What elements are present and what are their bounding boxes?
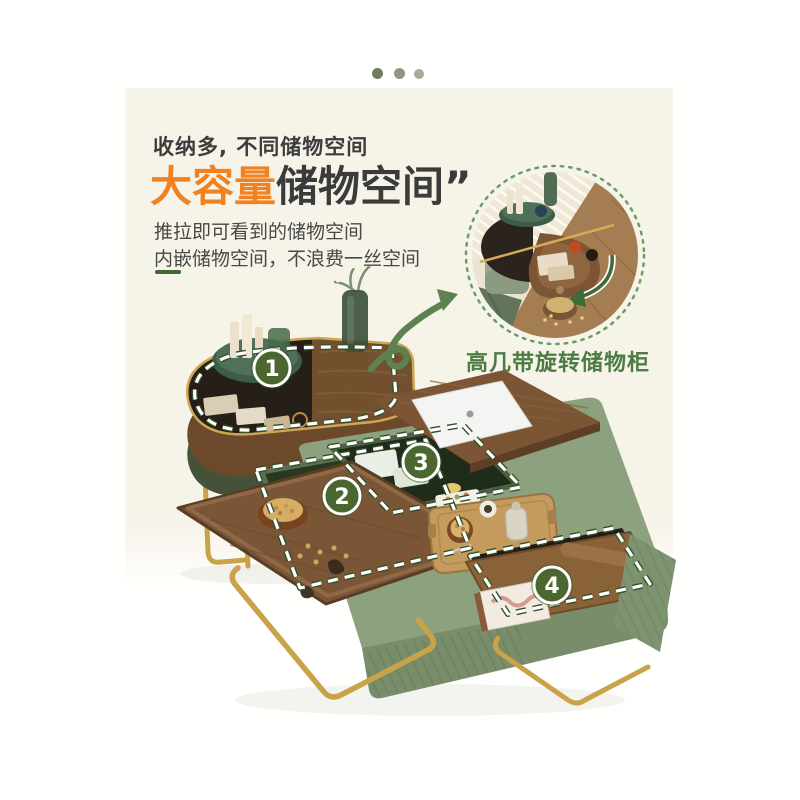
callout-badge-3: 3: [401, 442, 441, 482]
product-detail-page: 1 2 3 4: [0, 0, 800, 800]
badge-number-2: 2: [334, 485, 349, 510]
callout-badge-2: 2: [322, 476, 362, 516]
carousel-dot-3[interactable]: [414, 69, 424, 79]
carousel-dot-2[interactable]: [394, 68, 405, 79]
callout-badge-1: 1: [252, 348, 292, 388]
title-rest: 储物空间: [276, 162, 444, 211]
page-title: 大容量储物空间”: [150, 153, 472, 214]
description-line-2: 内嵌储物空间，不浪费一丝空间: [154, 246, 420, 273]
carousel-dot-1[interactable]: [372, 68, 383, 79]
description-line-1: 推拉即可看到的储物空间: [154, 219, 420, 246]
green-divider: [155, 270, 181, 274]
badge-number-1: 1: [264, 357, 279, 382]
title-highlight: 大容量: [150, 162, 276, 211]
badge-number-4: 4: [544, 574, 559, 599]
product-photo-scene: 1 2 3 4: [0, 0, 800, 800]
inset-caption: 高几带旋转储物柜: [458, 345, 658, 377]
callout-badge-4: 4: [532, 565, 572, 605]
description: 推拉即可看到的储物空间 内嵌储物空间，不浪费一丝空间: [154, 219, 420, 273]
title-quote-mark: ”: [444, 162, 472, 211]
badge-number-3: 3: [413, 451, 428, 476]
